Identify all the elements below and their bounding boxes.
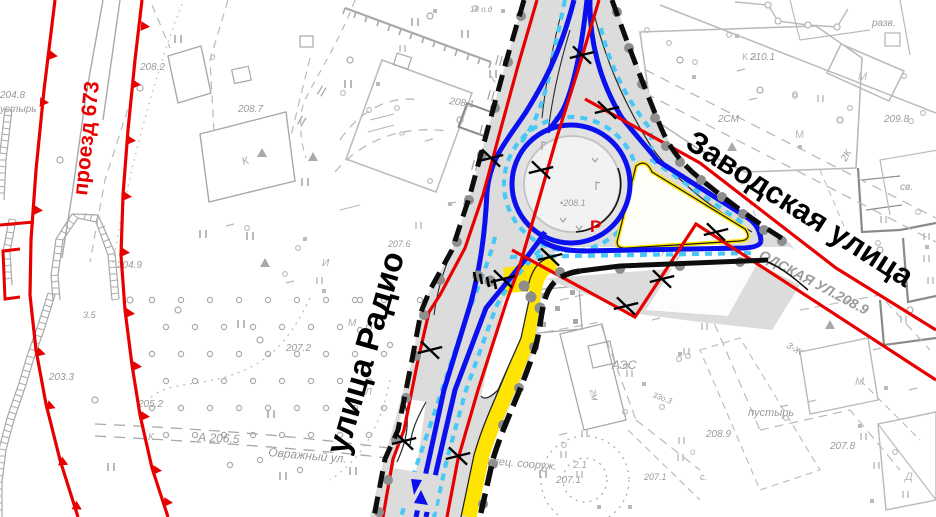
- svg-text:пустырь: пустырь: [748, 407, 794, 419]
- svg-text:св.: св.: [900, 182, 913, 193]
- svg-text:208.7: 208.7: [237, 104, 263, 115]
- svg-text:разв.: разв.: [871, 18, 896, 29]
- svg-text:2СМ: 2СМ: [717, 114, 740, 125]
- svg-text:207.2: 207.2: [285, 343, 311, 354]
- svg-text:устырь: устырь: [0, 104, 37, 115]
- svg-text:203.3: 203.3: [48, 372, 74, 383]
- svg-text:•208.1: •208.1: [560, 198, 586, 208]
- svg-text:с.: с.: [700, 472, 707, 482]
- svg-text:М: М: [855, 376, 865, 388]
- svg-text:М: М: [858, 71, 868, 83]
- svg-text:А 206.5: А 206.5: [197, 430, 240, 446]
- svg-text:3.5: 3.5: [83, 310, 97, 320]
- svg-text:Д: Д: [903, 471, 913, 483]
- svg-text:209.8: 209.8: [883, 114, 909, 125]
- svg-text:Р: Р: [590, 217, 601, 236]
- svg-text:И: И: [322, 258, 330, 269]
- svg-text:208.9: 208.9: [705, 429, 731, 440]
- svg-text:2.1: 2.1: [572, 460, 587, 471]
- svg-text:204.8: 204.8: [0, 90, 25, 101]
- svg-text:207.6: 207.6: [387, 239, 411, 249]
- svg-text:207.1: 207.1: [643, 472, 667, 482]
- svg-text:о: о: [690, 447, 696, 458]
- svg-text:205.2: 205.2: [137, 399, 163, 410]
- svg-text:о: о: [210, 52, 216, 63]
- svg-text:М: М: [795, 129, 804, 141]
- svg-text:207.8: 207.8: [829, 441, 855, 452]
- svg-text:208.2: 208.2: [139, 62, 165, 73]
- svg-text:210.1: 210.1: [749, 52, 775, 63]
